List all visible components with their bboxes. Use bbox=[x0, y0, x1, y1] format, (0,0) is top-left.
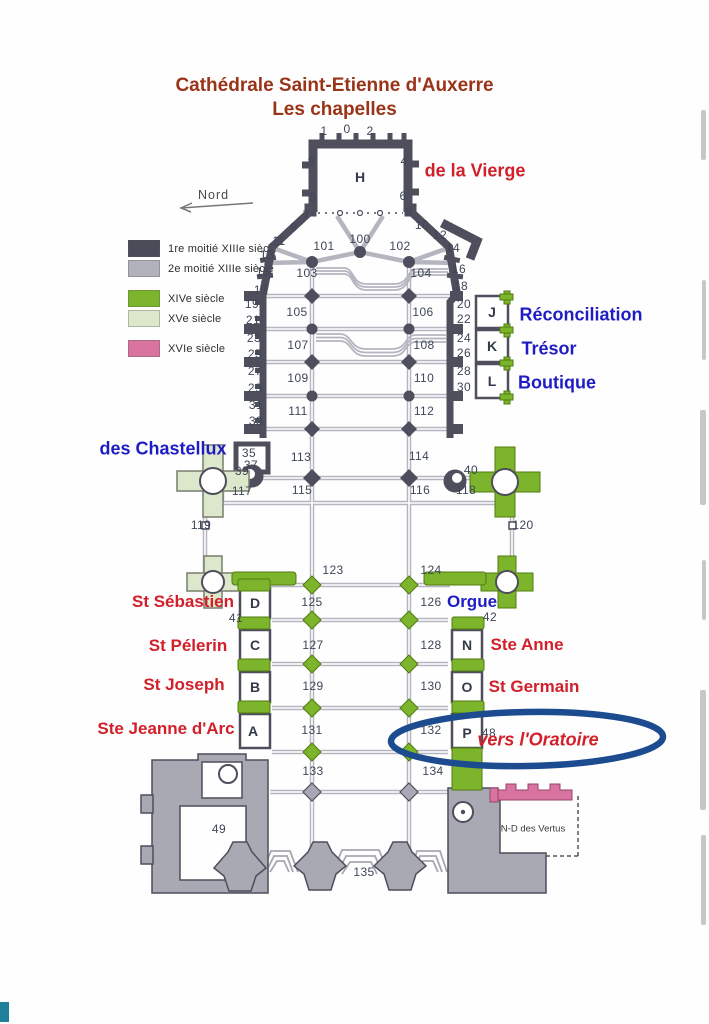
oratoire-highlight-ellipse bbox=[391, 710, 664, 769]
nd-des-vertus-16c bbox=[490, 784, 578, 856]
scan-artifacts bbox=[700, 110, 706, 925]
choir-steps-lines bbox=[316, 268, 448, 356]
scanned-plan-page: Cathédrale Saint-Etienne d'Auxerre Les c… bbox=[0, 0, 709, 1024]
floor-plan-drawing bbox=[0, 0, 709, 1024]
scan-artifact-corner bbox=[0, 1002, 9, 1022]
